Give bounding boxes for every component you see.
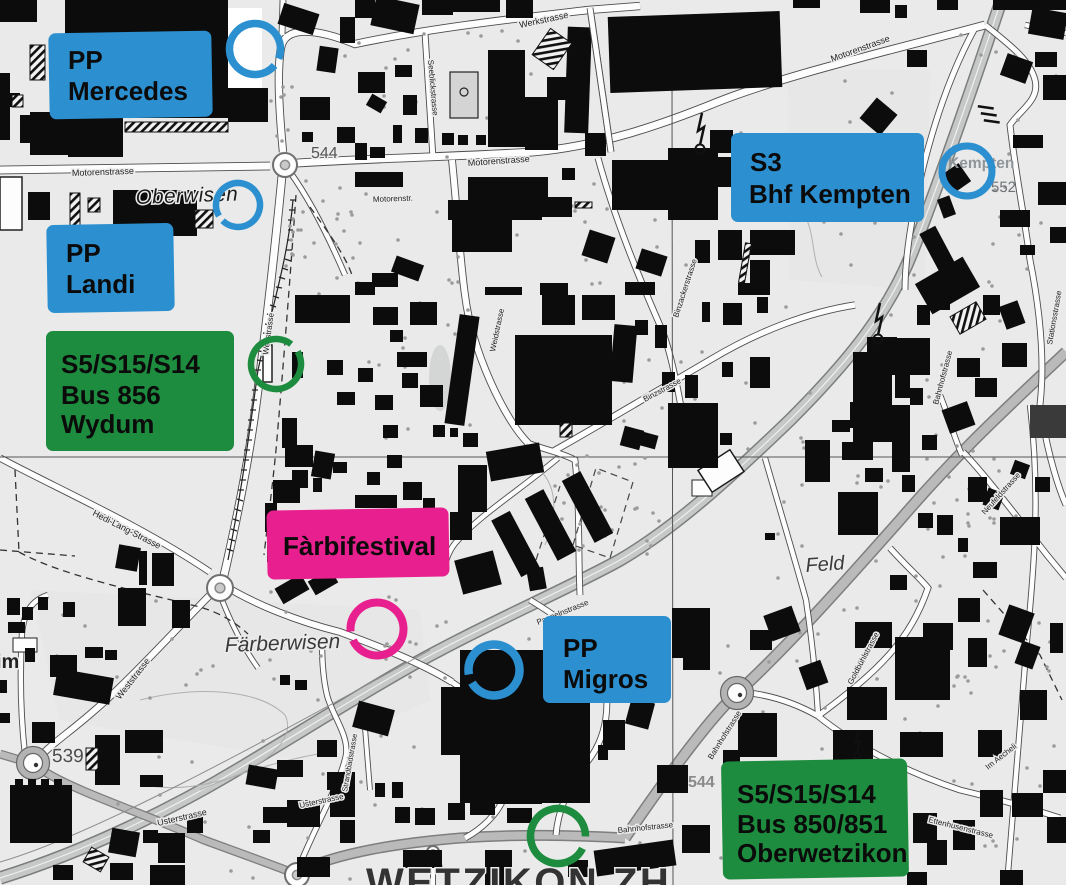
svg-text:S5/S15/S14: S5/S15/S14: [61, 349, 200, 379]
svg-text:Feld: Feld: [805, 552, 846, 577]
svg-text:Migros: Migros: [563, 664, 648, 694]
svg-text:S5/S15/S14: S5/S15/S14: [737, 779, 876, 809]
svg-text:S3: S3: [750, 147, 782, 177]
svg-text:WETZIKON ZH: WETZIKON ZH: [366, 861, 671, 885]
svg-text:539: 539: [52, 746, 84, 767]
svg-text:Motorenstr.: Motorenstr.: [373, 194, 413, 204]
svg-text:Mercedes: Mercedes: [68, 76, 188, 106]
svg-text:Wydum: Wydum: [61, 409, 154, 439]
svg-text:Kempten: Kempten: [948, 155, 1014, 172]
svg-text:PP: PP: [563, 633, 598, 663]
svg-text:Färberwisen: Färberwisen: [224, 630, 340, 657]
svg-text:Bus 850/851: Bus 850/851: [737, 809, 887, 839]
svg-text:im: im: [0, 651, 19, 673]
svg-text:552: 552: [991, 179, 1016, 196]
svg-text:544: 544: [311, 145, 338, 162]
svg-text:544: 544: [688, 774, 715, 791]
svg-text:PP: PP: [68, 45, 103, 75]
svg-text:Bus 856: Bus 856: [61, 380, 161, 410]
svg-text:Oberwetzikon: Oberwetzikon: [737, 838, 907, 868]
svg-text:Bhf Kempten: Bhf Kempten: [749, 179, 911, 209]
svg-text:Landi: Landi: [66, 269, 135, 299]
svg-text:Fàrbifestival: Fàrbifestival: [283, 531, 436, 561]
svg-text:PP: PP: [66, 238, 101, 268]
